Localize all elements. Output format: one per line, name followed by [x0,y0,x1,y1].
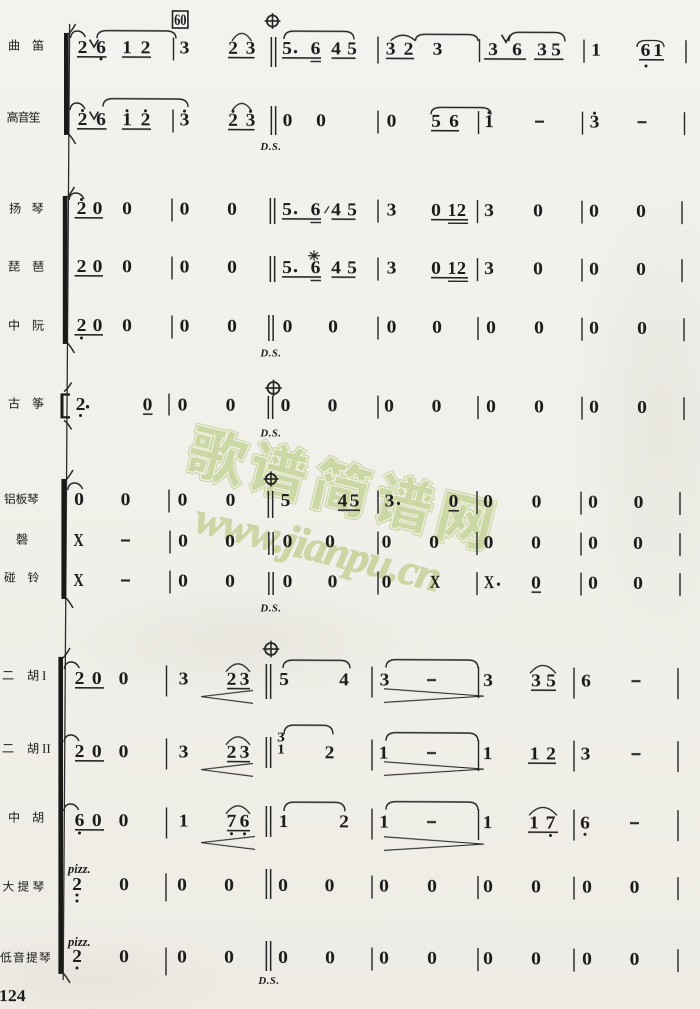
svg-text:0: 0 [119,947,129,967]
svg-text:0: 0 [328,396,338,416]
svg-text:3: 3 [380,670,390,690]
svg-text:0: 0 [534,318,544,338]
svg-text:0: 0 [178,490,188,510]
svg-text:1: 1 [379,743,389,763]
svg-text:0: 0 [143,395,153,415]
svg-text:3: 3 [387,259,397,279]
svg-text:4: 4 [338,491,348,511]
svg-text:3: 3 [179,669,189,689]
svg-text:D.S.: D.S. [259,141,281,153]
svg-text:1: 1 [448,200,457,220]
svg-text:0: 0 [387,112,397,132]
svg-text:0: 0 [180,257,190,277]
svg-text:0: 0 [483,492,493,512]
svg-text:0: 0 [532,492,542,512]
svg-text:5: 5 [282,200,292,220]
svg-text:0: 0 [630,878,640,898]
svg-text:7: 7 [546,813,556,833]
svg-text:0: 0 [122,316,132,336]
svg-text:0: 0 [633,574,643,594]
svg-text:4: 4 [331,258,341,278]
svg-text:0: 0 [226,396,236,416]
svg-text:0: 0 [427,949,437,969]
svg-text:2: 2 [75,742,85,762]
svg-text:5: 5 [282,258,292,278]
svg-text:6: 6 [311,39,321,59]
svg-text:0: 0 [281,396,291,416]
svg-text:2: 2 [75,669,85,689]
svg-text:2: 2 [227,670,237,690]
svg-text:3: 3 [246,39,256,59]
svg-text:2: 2 [78,38,88,58]
svg-text:2: 2 [227,743,237,763]
svg-text:1: 1 [279,812,289,832]
svg-text:3: 3 [385,492,395,512]
svg-text:D.S.: D.S. [259,427,281,439]
svg-text:0: 0 [636,202,646,222]
svg-text:1: 1 [483,744,493,764]
svg-text:6: 6 [75,811,85,831]
svg-text:3: 3 [386,40,396,60]
svg-text:5: 5 [546,671,556,691]
svg-text:2: 2 [78,110,88,130]
svg-text:1: 1 [122,110,132,130]
svg-text:1: 1 [179,811,189,831]
svg-text:0: 0 [429,533,439,553]
svg-text:4: 4 [331,39,341,59]
svg-text:0: 0 [432,318,442,338]
svg-text:1: 1 [530,744,540,764]
svg-text:0: 0 [177,875,187,895]
svg-text:2: 2 [457,258,466,278]
svg-text:0: 0 [589,398,599,418]
svg-text:3: 3 [240,670,250,690]
svg-text:0: 0 [449,492,459,512]
svg-text:0: 0 [484,533,494,553]
svg-text:0: 0 [119,811,129,831]
svg-text:5: 5 [551,40,561,60]
svg-text:0: 0 [432,397,442,417]
svg-text:D.S.: D.S. [259,347,281,359]
svg-text:0: 0 [226,491,236,511]
svg-text:0: 0 [283,111,293,131]
svg-text:3: 3 [179,742,189,762]
svg-text:0: 0 [384,397,394,417]
svg-text:D.S.: D.S. [259,602,281,614]
svg-text:0: 0 [637,319,647,339]
svg-text:0: 0 [431,201,441,221]
svg-text:2: 2 [141,38,151,58]
svg-text:0: 0 [74,490,84,510]
svg-text:0: 0 [531,573,541,593]
svg-text:0: 0 [119,669,129,689]
svg-text:1: 1 [591,41,601,61]
svg-text:0: 0 [225,532,235,552]
svg-text:0: 0 [325,948,335,968]
svg-text:0: 0 [531,949,541,969]
svg-text:0: 0 [483,877,493,897]
svg-text:0: 0 [328,572,338,592]
svg-text:0: 0 [534,397,544,417]
svg-text:0: 0 [634,493,644,513]
svg-text:3: 3 [246,111,256,131]
svg-text:0: 0 [224,948,234,968]
svg-text:3: 3 [484,259,494,279]
svg-text:6: 6 [581,672,591,692]
svg-text:3: 3 [180,38,190,58]
svg-text:0: 0 [177,947,187,967]
svg-text:2: 2 [77,257,87,277]
svg-text:5: 5 [279,670,289,690]
svg-text:X: X [430,574,441,593]
svg-text:0: 0 [178,531,188,551]
svg-text:5: 5 [281,491,291,511]
svg-text:1: 1 [653,41,663,61]
svg-text:0: 0 [325,876,335,896]
svg-text:I: I [42,668,46,683]
svg-text:0: 0 [531,533,541,553]
svg-text:0: 0 [582,950,592,970]
svg-text:1: 1 [448,258,457,278]
svg-text:0: 0 [328,317,338,337]
svg-text:0: 0 [283,572,293,592]
svg-text:0: 0 [533,201,543,221]
svg-text:3: 3 [433,40,443,60]
svg-text:0: 0 [93,257,103,277]
svg-text:4: 4 [339,670,349,690]
svg-text:0: 0 [225,572,235,592]
svg-text:6: 6 [449,112,459,132]
svg-text:2: 2 [76,395,86,415]
svg-text:2: 2 [77,316,87,336]
svg-text:4: 4 [331,200,341,220]
svg-text:0: 0 [122,257,132,277]
svg-text:0: 0 [227,258,237,278]
svg-text:0: 0 [283,532,293,552]
svg-text:6: 6 [512,40,522,60]
svg-text:2: 2 [457,200,466,220]
svg-text:0: 0 [589,202,599,222]
svg-text:0: 0 [533,259,543,279]
svg-text:3: 3 [484,201,494,221]
svg-text:5: 5 [347,200,357,220]
svg-text:0: 0 [637,398,647,418]
svg-text:0: 0 [630,950,640,970]
svg-text:6: 6 [311,258,321,278]
svg-text:3: 3 [488,40,498,60]
svg-text:1: 1 [379,812,389,832]
svg-text:60: 60 [174,12,186,30]
svg-text:2: 2 [228,39,238,59]
svg-text:0: 0 [325,532,335,552]
svg-text:0: 0 [283,317,293,337]
svg-text:124: 124 [0,987,26,1005]
svg-text:3: 3 [483,671,493,691]
svg-text:0: 0 [382,573,392,593]
svg-text:5: 5 [431,112,441,132]
svg-text:X: X [73,532,84,551]
svg-text:2: 2 [228,111,238,131]
svg-text:0: 0 [589,260,599,280]
svg-text:5: 5 [282,39,292,59]
svg-text:0: 0 [121,490,131,510]
svg-text:3: 3 [537,40,547,60]
svg-text:0: 0 [119,742,129,762]
svg-text:3: 3 [590,113,600,133]
svg-text:0: 0 [92,669,102,689]
svg-text:1: 1 [529,813,539,833]
svg-text:0: 0 [180,316,190,336]
svg-text:X: X [73,572,84,591]
svg-text:1: 1 [484,112,494,132]
svg-text:0: 0 [93,199,103,219]
svg-text:0: 0 [582,878,592,898]
svg-text:0: 0 [427,877,437,897]
svg-text:5: 5 [347,39,357,59]
svg-text:0: 0 [486,397,496,417]
svg-text:0: 0 [382,533,392,553]
svg-text:0: 0 [588,534,598,554]
svg-text:0: 0 [431,259,441,279]
svg-text:2: 2 [325,743,335,763]
svg-text:0: 0 [531,877,541,897]
svg-text:0: 0 [633,534,643,554]
svg-text:1: 1 [483,813,493,833]
svg-text:0: 0 [224,876,234,896]
svg-text:0: 0 [278,948,288,968]
svg-text:0: 0 [379,876,389,896]
svg-text:II: II [42,741,51,756]
svg-text:0: 0 [178,395,188,415]
svg-text:0: 0 [92,811,102,831]
svg-text:1: 1 [122,38,132,58]
svg-text:0: 0 [227,317,237,337]
svg-text:3: 3 [240,743,250,763]
svg-text:3: 3 [581,745,591,765]
svg-text:6: 6 [580,814,590,834]
svg-text:0: 0 [93,316,103,336]
svg-text:0: 0 [486,318,496,338]
svg-text:0: 0 [122,199,132,219]
svg-text:5: 5 [350,491,360,511]
svg-text:0: 0 [119,875,129,895]
svg-text:0: 0 [316,111,326,131]
svg-text:2: 2 [141,110,151,130]
svg-text:2: 2 [546,744,556,764]
svg-text:2: 2 [404,40,414,60]
svg-text:0: 0 [483,949,493,969]
svg-text:0: 0 [588,493,598,513]
svg-text:0: 0 [588,574,598,594]
svg-text:0: 0 [178,571,188,591]
svg-text:0: 0 [92,742,102,762]
svg-text:0: 0 [387,318,397,338]
svg-text:6: 6 [641,41,651,61]
svg-text:6: 6 [311,200,321,220]
svg-text:0: 0 [278,876,288,896]
svg-text:2: 2 [77,199,87,219]
svg-text:X: X [484,574,495,593]
svg-text:7: 7 [227,812,237,832]
svg-text:1: 1 [277,742,285,757]
svg-text:0: 0 [636,260,646,280]
svg-text:0: 0 [180,199,190,219]
svg-text:3: 3 [531,671,541,691]
svg-text:2: 2 [339,812,349,832]
svg-text:6: 6 [240,812,250,832]
svg-text:2: 2 [72,875,82,895]
svg-text:0: 0 [227,200,237,220]
svg-text:0: 0 [589,319,599,339]
svg-text:D.S.: D.S. [257,975,279,987]
svg-text:0: 0 [379,948,389,968]
svg-text:3: 3 [180,110,190,130]
svg-text:3: 3 [387,201,397,221]
svg-text:2: 2 [72,947,82,967]
svg-text:5: 5 [347,258,357,278]
